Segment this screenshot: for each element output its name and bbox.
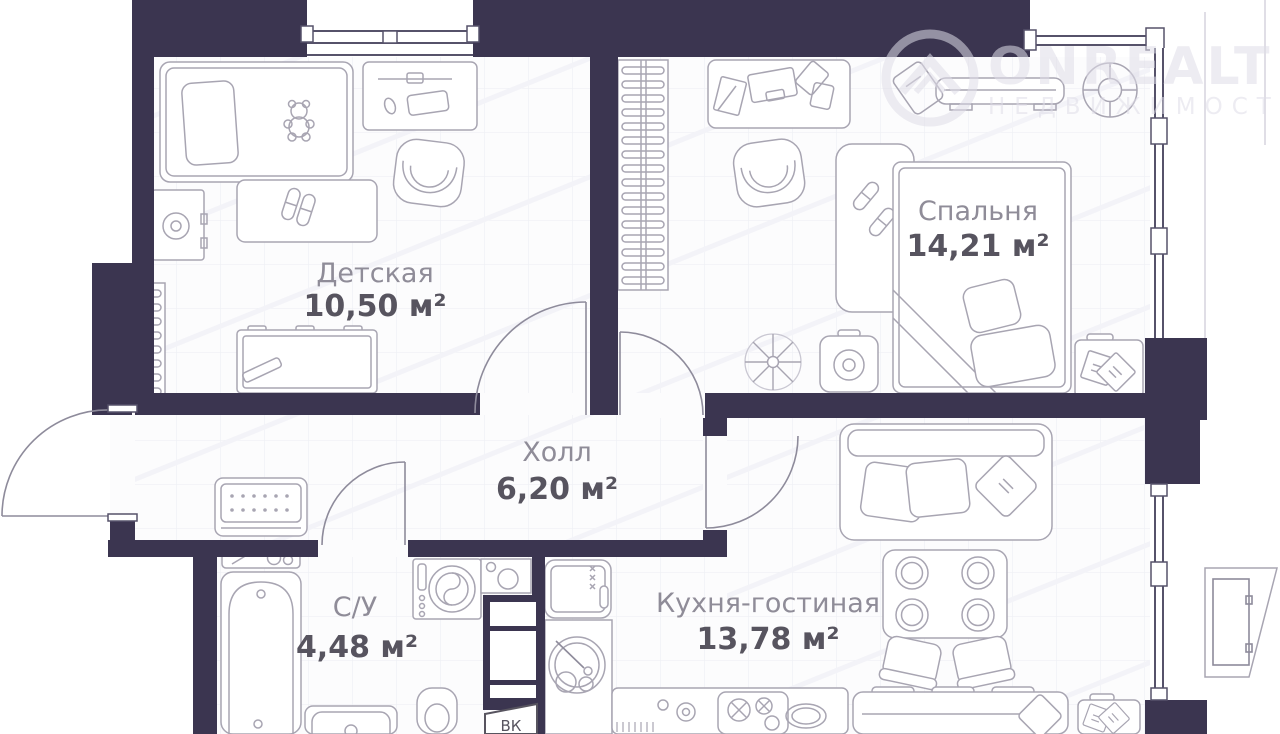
room-label-spalnya: Спальня (918, 196, 1038, 227)
bathtub-icon (221, 572, 301, 734)
washing-machine-icon (413, 559, 481, 619)
desk-icon (708, 60, 850, 128)
threshold-entrance (110, 409, 135, 517)
speaker-cabinet-icon (820, 330, 878, 392)
room-label-hall: Холл (522, 437, 592, 468)
floor-plan-svg: Детская 10,50 м² Спальня 14,21 м² Холл 6… (0, 0, 1280, 734)
rug-icon (237, 180, 377, 242)
threshold-bathroom (318, 540, 408, 557)
watermark-brand: ONREALT (988, 37, 1273, 97)
nightstand-icon (1078, 694, 1140, 734)
sofa-icon (840, 424, 1052, 540)
doormat-icon (215, 478, 307, 536)
room-label-bathroom: С/У (333, 592, 377, 623)
chair-icon (391, 137, 466, 209)
wardrobe-icon (618, 60, 668, 290)
duct-label: ВК (501, 717, 522, 734)
room-area-hall: 6,20 м² (496, 472, 618, 507)
chair-icon (731, 137, 807, 210)
window-detskaya (301, 0, 479, 57)
fridge-icon (545, 560, 611, 618)
room-area-detskaya: 10,50 м² (304, 289, 447, 324)
room-area-bathroom: 4,48 м² (296, 630, 418, 665)
threshold-detskaya (480, 393, 590, 415)
room-area-spalnya: 14,21 м² (907, 229, 1050, 264)
sink-icon (305, 706, 397, 734)
nightstand-icon (1075, 334, 1143, 398)
desk-icon (363, 62, 477, 130)
furniture-hall (215, 478, 307, 536)
dresser-icon (237, 326, 377, 393)
cabinet-icon (152, 190, 207, 260)
ac-basket-icon (1205, 568, 1277, 677)
toilet-icon (417, 688, 457, 734)
decor-star-icon (745, 334, 801, 390)
corner-sink-icon (481, 559, 531, 593)
watermark-tagline: НЕДВИЖИМОСТЬ (988, 94, 1280, 120)
bed-icon (160, 62, 353, 182)
threshold-spalnya (618, 393, 705, 418)
room-label-detskaya: Детская (316, 258, 433, 289)
window-kitchen-right (1150, 484, 1168, 700)
room-label-kitchen: Кухня-гостиная (656, 588, 880, 619)
room-area-kitchen: 13,78 м² (697, 622, 840, 657)
floor-plan-page: Детская 10,50 м² Спальня 14,21 м² Холл 6… (0, 0, 1280, 734)
duct-shaft (483, 595, 543, 710)
sofa-bottom-icon (853, 687, 1068, 734)
dining-table-icon (883, 550, 1007, 638)
